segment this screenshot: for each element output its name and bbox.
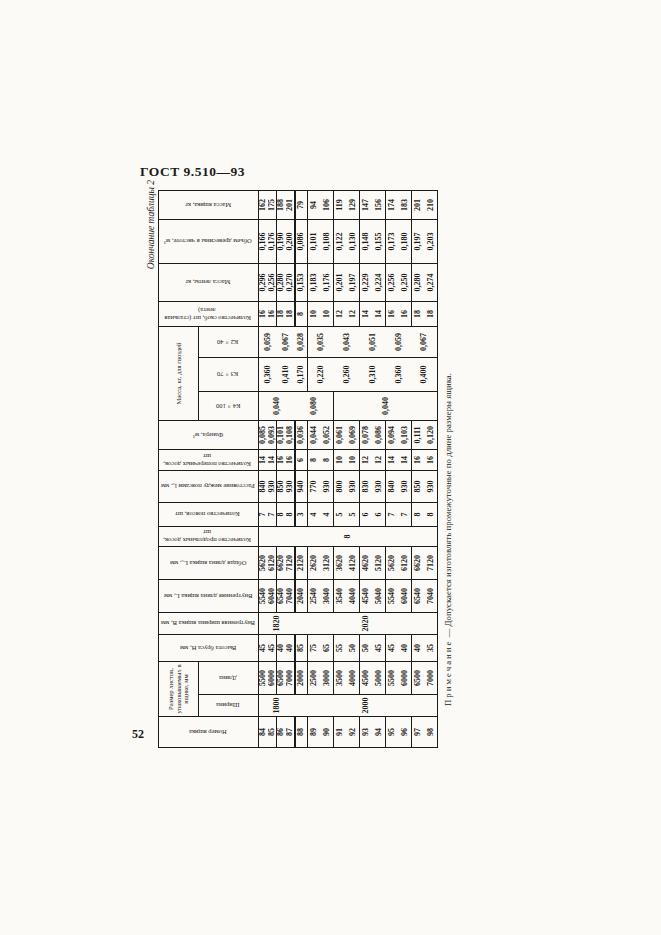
table-cell: 14 — [399, 449, 412, 470]
table-cell: 6040 — [268, 579, 277, 612]
table-cell: 50 — [360, 634, 373, 661]
table-cell: 162 — [259, 190, 268, 219]
table-row: 93450050454046206830120,0780,3100,051140… — [360, 190, 373, 747]
table-cell: 16 — [386, 301, 399, 326]
table-cell: 10 — [334, 449, 347, 470]
table-cell: 770 — [308, 470, 321, 502]
table-cell: 0,103 — [399, 420, 412, 449]
table-cell: 7 — [399, 502, 412, 526]
table-cell: 18 — [425, 301, 438, 326]
table-cell: 87 — [286, 717, 295, 748]
table-cell: 0,086 — [373, 420, 386, 449]
table-header-cell: Количество поясов, шт — [159, 502, 259, 526]
table-cell: 16 — [412, 449, 425, 470]
table-cell: 7 — [268, 502, 277, 526]
table-cell: 0,176 — [268, 219, 277, 263]
table-cell: 201 — [286, 190, 295, 219]
table-cell: 0,028 — [295, 326, 308, 357]
table-row: 8925007525402620477080,0440,2200,035100,… — [308, 190, 321, 747]
table-cell: 91 — [334, 717, 347, 748]
table-cell: 830 — [360, 470, 373, 502]
table-cell: 0,410 — [277, 357, 295, 391]
note-label: Примечание — [443, 640, 453, 706]
table-cell: 7 — [386, 502, 399, 526]
table-cell: 2620 — [308, 546, 321, 579]
table-cell: 0,250 — [399, 263, 412, 301]
table-cell: 6500 — [277, 661, 286, 694]
table-note: Примечание — Допускается изготовлять про… — [443, 176, 453, 748]
table-cell: 8 — [259, 526, 438, 546]
table-cell: 4000 — [347, 661, 360, 694]
table-cell: 940 — [295, 470, 308, 502]
table-cell: 94 — [373, 717, 386, 748]
table-cell: 5500 — [386, 661, 399, 694]
page-number: 52 — [132, 727, 144, 742]
table-cell: 7 — [259, 502, 268, 526]
table-cell: 8 — [308, 449, 321, 470]
table-cell: 2000 — [295, 661, 308, 694]
table-cell: 14 — [259, 449, 268, 470]
table-header-cell: Объем древесины в чистоте, м³ — [159, 219, 259, 263]
table-cell: 84 — [259, 717, 268, 748]
table-cell: 930 — [321, 470, 334, 502]
table-cell: 6000 — [268, 661, 277, 694]
table-cell: 930 — [399, 470, 412, 502]
table-header-cell: Общая длина ящика L₁, мм — [159, 546, 259, 579]
table-cell: 0,274 — [425, 263, 438, 301]
table-cell: 183 — [399, 190, 412, 219]
table-cell: 0,101 — [277, 420, 286, 449]
table-cell: 1820 — [259, 612, 295, 634]
table-header-cell: Высота бруса Н, мм — [159, 634, 259, 661]
table-cell: 4500 — [360, 661, 373, 694]
table-cell: 6540 — [277, 579, 286, 612]
table-row: 97650040654066208850160,1110,4000,067180… — [412, 190, 425, 747]
table-cell: 800 — [334, 470, 347, 502]
table-cell: 3120 — [321, 546, 334, 579]
table-cell: 0,069 — [347, 420, 360, 449]
table-cell: 0,280 — [412, 263, 425, 301]
table-cell: 0,201 — [334, 263, 347, 301]
table-cell: 930 — [425, 470, 438, 502]
table-row: 92400050404041205930100,069120,1970,1301… — [347, 190, 360, 747]
table-cell: 0,059 — [386, 326, 412, 357]
table-cell: 50 — [347, 634, 360, 661]
table-header-cell: К4×100 — [199, 391, 259, 420]
table-cell: 174 — [386, 190, 399, 219]
table-cell: 6500 — [412, 661, 425, 694]
table-cell: 147 — [360, 190, 373, 219]
table-cell: 16 — [425, 449, 438, 470]
table-cell: 0,260 — [334, 357, 360, 391]
table-cell: 210 — [425, 190, 438, 219]
table-cell: 6000 — [399, 661, 412, 694]
table-cell: 92 — [347, 717, 360, 748]
table-header-cell: Масса ленты, кг — [159, 263, 259, 301]
table-cell: 0,200 — [286, 219, 295, 263]
table-cell: 0,155 — [373, 219, 386, 263]
table-cell: 0,111 — [412, 420, 425, 449]
table-cell: 85 — [295, 634, 308, 661]
table-row: 95550045554056207840140,0940,3600,059160… — [386, 190, 399, 747]
table-cell: 0,059 — [259, 326, 277, 357]
dimensions-table: Номер ящикаРазмер листов, упаковываемых … — [158, 190, 438, 748]
table-cell: 930 — [347, 470, 360, 502]
table-cell: 0,173 — [386, 219, 399, 263]
table-header-cell: Фанера, м³ — [159, 420, 259, 449]
table-cell: 0,108 — [286, 420, 295, 449]
table-cell: 10 — [308, 301, 321, 326]
table-cell: 0,085 — [259, 420, 268, 449]
table-cell: 129 — [347, 190, 360, 219]
table-cell: 930 — [373, 470, 386, 502]
table-cell: 5 — [334, 502, 347, 526]
table-cell: 5540 — [259, 579, 268, 612]
table-cell: 7040 — [286, 579, 295, 612]
table-caption: Окончание таблицы 2 — [146, 176, 156, 748]
table-cell: 0,360 — [259, 357, 277, 391]
table-cell: 0,035 — [308, 326, 334, 357]
table-cell: 4540 — [360, 579, 373, 612]
table-cell: 5620 — [386, 546, 399, 579]
table-cell: 95 — [386, 717, 399, 748]
table-cell: 850 — [412, 470, 425, 502]
table-cell: 6120 — [268, 546, 277, 579]
table-cell: 10 — [321, 301, 334, 326]
note-text: — Допускается изготовлять промежуточные … — [443, 373, 453, 640]
table-row: 84180055004518205540562087840140,0850,04… — [259, 190, 268, 747]
table-cell: 45 — [373, 634, 386, 661]
table-cell: 0,229 — [360, 263, 373, 301]
table-cell: 2000 — [295, 695, 438, 717]
table-cell: 4 — [308, 502, 321, 526]
table-cell: 14 — [373, 301, 386, 326]
table-cell: 930 — [286, 470, 295, 502]
table-cell: 2020 — [295, 612, 438, 634]
table-cell: 0,051 — [360, 326, 386, 357]
table-cell: 0,176 — [321, 263, 334, 301]
table-cell: 14 — [386, 449, 399, 470]
table-cell: 5620 — [259, 546, 268, 579]
table-cell: 0,080 — [295, 391, 334, 420]
table-cell: 3000 — [321, 661, 334, 694]
table-cell: 8 — [286, 502, 295, 526]
table-cell: 40 — [277, 634, 286, 661]
table-cell: 79 — [295, 190, 308, 219]
table-cell: 2120 — [295, 546, 308, 579]
table-cell: 94 — [308, 190, 321, 219]
table-cell: 0,180 — [399, 219, 412, 263]
table-cell: 0,224 — [373, 263, 386, 301]
table-cell: 0,270 — [286, 263, 295, 301]
table-cell: 88 — [295, 717, 308, 748]
table-cell: 119 — [334, 190, 347, 219]
table-cell: 7120 — [425, 546, 438, 579]
table-row: 9030006530403120493080,052100,1760,10810… — [321, 190, 334, 747]
table-cell: 4 — [321, 502, 334, 526]
table-cell: 4620 — [360, 546, 373, 579]
table-header-cell: Длина — [199, 661, 259, 694]
table-cell: 850 — [277, 470, 286, 502]
table-cell: 0,122 — [334, 219, 347, 263]
table-cell: 0,360 — [386, 357, 412, 391]
table-cell: 0,280 — [277, 263, 286, 301]
table-cell: 12 — [334, 301, 347, 326]
table-cell: 0,061 — [334, 420, 347, 449]
table-cell: 5040 — [373, 579, 386, 612]
table-cell: 0,052 — [321, 420, 334, 449]
table-cell: 0,086 — [295, 219, 308, 263]
table-cell: 8 — [277, 502, 286, 526]
table-row: 91350055354036205800100,0610,0400,2600,0… — [334, 190, 347, 747]
rotated-table-block: Окончание таблицы 2 Номер ящикаРазмер ли… — [146, 176, 456, 748]
table-cell: 0,036 — [295, 420, 308, 449]
table-cell: 89 — [308, 717, 321, 748]
table-header-cell: Внутренняя ширина ящика В, мм — [159, 612, 259, 634]
table-cell: 0,120 — [425, 420, 438, 449]
table-cell: 16 — [268, 301, 277, 326]
table-cell: 6 — [373, 502, 386, 526]
table-cell: 0,040 — [259, 391, 295, 420]
table-cell: 5000 — [373, 661, 386, 694]
table-cell: 40 — [412, 634, 425, 661]
table-cell: 35 — [425, 634, 438, 661]
table-cell: 0,203 — [425, 219, 438, 263]
table-cell: 98 — [425, 717, 438, 748]
table-cell: 40 — [286, 634, 295, 661]
table-cell: 90 — [321, 717, 334, 748]
table-header-cell: Количество скоб, шт (стальная лента) — [159, 301, 259, 326]
table-cell: 7120 — [286, 546, 295, 579]
table-header-cell: Масса, кг, для гвоздей — [159, 326, 199, 420]
table-cell: 3620 — [334, 546, 347, 579]
table-cell: 5540 — [386, 579, 399, 612]
table-cell: 3040 — [321, 579, 334, 612]
table-cell: 6540 — [412, 579, 425, 612]
table-cell: 7000 — [286, 661, 295, 694]
table-cell: 188 — [277, 190, 286, 219]
table-cell: 175 — [268, 190, 277, 219]
table-cell: 0,044 — [308, 420, 321, 449]
table-cell: 12 — [373, 449, 386, 470]
table-cell: 5120 — [373, 546, 386, 579]
table-cell: 12 — [347, 301, 360, 326]
table-cell: 3500 — [334, 661, 347, 694]
table-cell: 930 — [268, 470, 277, 502]
table-cell: 18 — [412, 301, 425, 326]
table-cell: 0,256 — [268, 263, 277, 301]
table-row: 85600045604061207930140,093160,2560,1761… — [268, 190, 277, 747]
table-cell: 0,256 — [386, 263, 399, 301]
table-cell: 6620 — [412, 546, 425, 579]
table-cell: 14 — [268, 449, 277, 470]
table-cell: 3540 — [334, 579, 347, 612]
table-cell: 96 — [399, 717, 412, 748]
table-cell: 6040 — [399, 579, 412, 612]
table-cell: 0,130 — [347, 219, 360, 263]
table-cell: 1800 — [259, 695, 295, 717]
scanned-document-page: { "page": { "standard_code": "ГОСТ 9.510… — [0, 0, 661, 935]
table-cell: 93 — [360, 717, 373, 748]
table-cell: 0,078 — [360, 420, 373, 449]
table-cell: 16 — [399, 301, 412, 326]
table-cell: 0,197 — [412, 219, 425, 263]
table-cell: 97 — [412, 717, 425, 748]
table-cell: 0,296 — [259, 263, 268, 301]
table-cell: 0,400 — [412, 357, 438, 391]
table-header-cell: Ширина — [199, 695, 259, 717]
table-cell: 14 — [360, 301, 373, 326]
table-cell: 3 — [295, 502, 308, 526]
table-cell: 8 — [412, 502, 425, 526]
table-cell: 106 — [321, 190, 334, 219]
table-cell: 0,197 — [347, 263, 360, 301]
table-cell: 0,040 — [334, 391, 438, 420]
table-cell: 0,310 — [360, 357, 386, 391]
table-cell: 55 — [334, 634, 347, 661]
table-cell: 16 — [259, 301, 268, 326]
table-cell: 0,148 — [360, 219, 373, 263]
table-header-cell: Количество поперечных досок, шт — [159, 449, 259, 470]
table-cell: 0,183 — [308, 263, 321, 301]
table-cell: 6 — [295, 449, 308, 470]
table-cell: 0,153 — [295, 263, 308, 301]
table-cell: 86 — [277, 717, 286, 748]
table-header-cell: Номер ящика — [159, 717, 259, 748]
table-cell: 85 — [268, 717, 277, 748]
table-cell: 0,170 — [295, 357, 308, 391]
table-cell: 10 — [347, 449, 360, 470]
table-cell: 4040 — [347, 579, 360, 612]
table-cell: 5 — [347, 502, 360, 526]
table-cell: 18 — [277, 301, 286, 326]
table-cell: 8 — [295, 301, 308, 326]
table-cell: 0,166 — [259, 219, 268, 263]
table-cell: 45 — [259, 634, 268, 661]
table-cell: 0,067 — [277, 326, 295, 357]
table-cell: 65 — [321, 634, 334, 661]
table-cell: 6 — [360, 502, 373, 526]
table-row: 882000200085202020402120394060,0360,0800… — [295, 190, 308, 747]
table-cell: 40 — [399, 634, 412, 661]
table-cell: 45 — [386, 634, 399, 661]
table-header-cell: Масса ящика, кг — [159, 190, 259, 219]
table-cell: 2540 — [308, 579, 321, 612]
table-cell: 6620 — [277, 546, 286, 579]
table-cell: 0,108 — [321, 219, 334, 263]
table-cell: 12 — [360, 449, 373, 470]
table-cell: 7000 — [425, 661, 438, 694]
table-header-cell: Внутренняя длина ящика L, мм — [159, 579, 259, 612]
table-cell: 2500 — [308, 661, 321, 694]
table-cell: 0,067 — [412, 326, 438, 357]
table-header-cell: К2×40 — [199, 326, 259, 357]
table-cell: 156 — [373, 190, 386, 219]
table-header-cell: Количество продольных досок, шт — [159, 526, 259, 546]
table-cell: 2040 — [295, 579, 308, 612]
table-cell: 201 — [412, 190, 425, 219]
table-cell: 16 — [277, 449, 286, 470]
table-cell: 75 — [308, 634, 321, 661]
table-row: 86650040654066208850160,1010,4100,067180… — [277, 190, 286, 747]
table-row: 96600040604061207930140,103160,2500,1801… — [399, 190, 412, 747]
table-cell: 5500 — [259, 661, 268, 694]
table-cell: 0,043 — [334, 326, 360, 357]
table-header-cell: К3×70 — [199, 357, 259, 391]
table-cell: 0,101 — [308, 219, 321, 263]
table-cell: 16 — [286, 449, 295, 470]
table-header-cell: Расстояние между поясами l₂, мм — [159, 470, 259, 502]
table-header-cell: Размер листов, упаковываемых в ящике, мм — [159, 661, 199, 716]
table-cell: 0,093 — [268, 420, 277, 449]
table-cell: 0,094 — [386, 420, 399, 449]
table-cell: 6120 — [399, 546, 412, 579]
table-cell: 840 — [386, 470, 399, 502]
table-row: 87700040704071208930160,108180,2700,2002… — [286, 190, 295, 747]
table-row: 98700035704071208930160,120180,2740,2032… — [425, 190, 438, 747]
table-cell: 18 — [286, 301, 295, 326]
table-header: Номер ящикаРазмер листов, упаковываемых … — [159, 190, 259, 747]
table-cell: 0,220 — [308, 357, 334, 391]
table-cell: 840 — [259, 470, 268, 502]
table-body: 84180055004518205540562087840140,0850,04… — [259, 190, 438, 747]
table-cell: 8 — [425, 502, 438, 526]
table-cell: 4120 — [347, 546, 360, 579]
table-cell: 7040 — [425, 579, 438, 612]
table-cell: 0,190 — [277, 219, 286, 263]
table-cell: 8 — [321, 449, 334, 470]
table-cell: 45 — [268, 634, 277, 661]
table-row: 94500045504051206930120,086140,2240,1551… — [373, 190, 386, 747]
